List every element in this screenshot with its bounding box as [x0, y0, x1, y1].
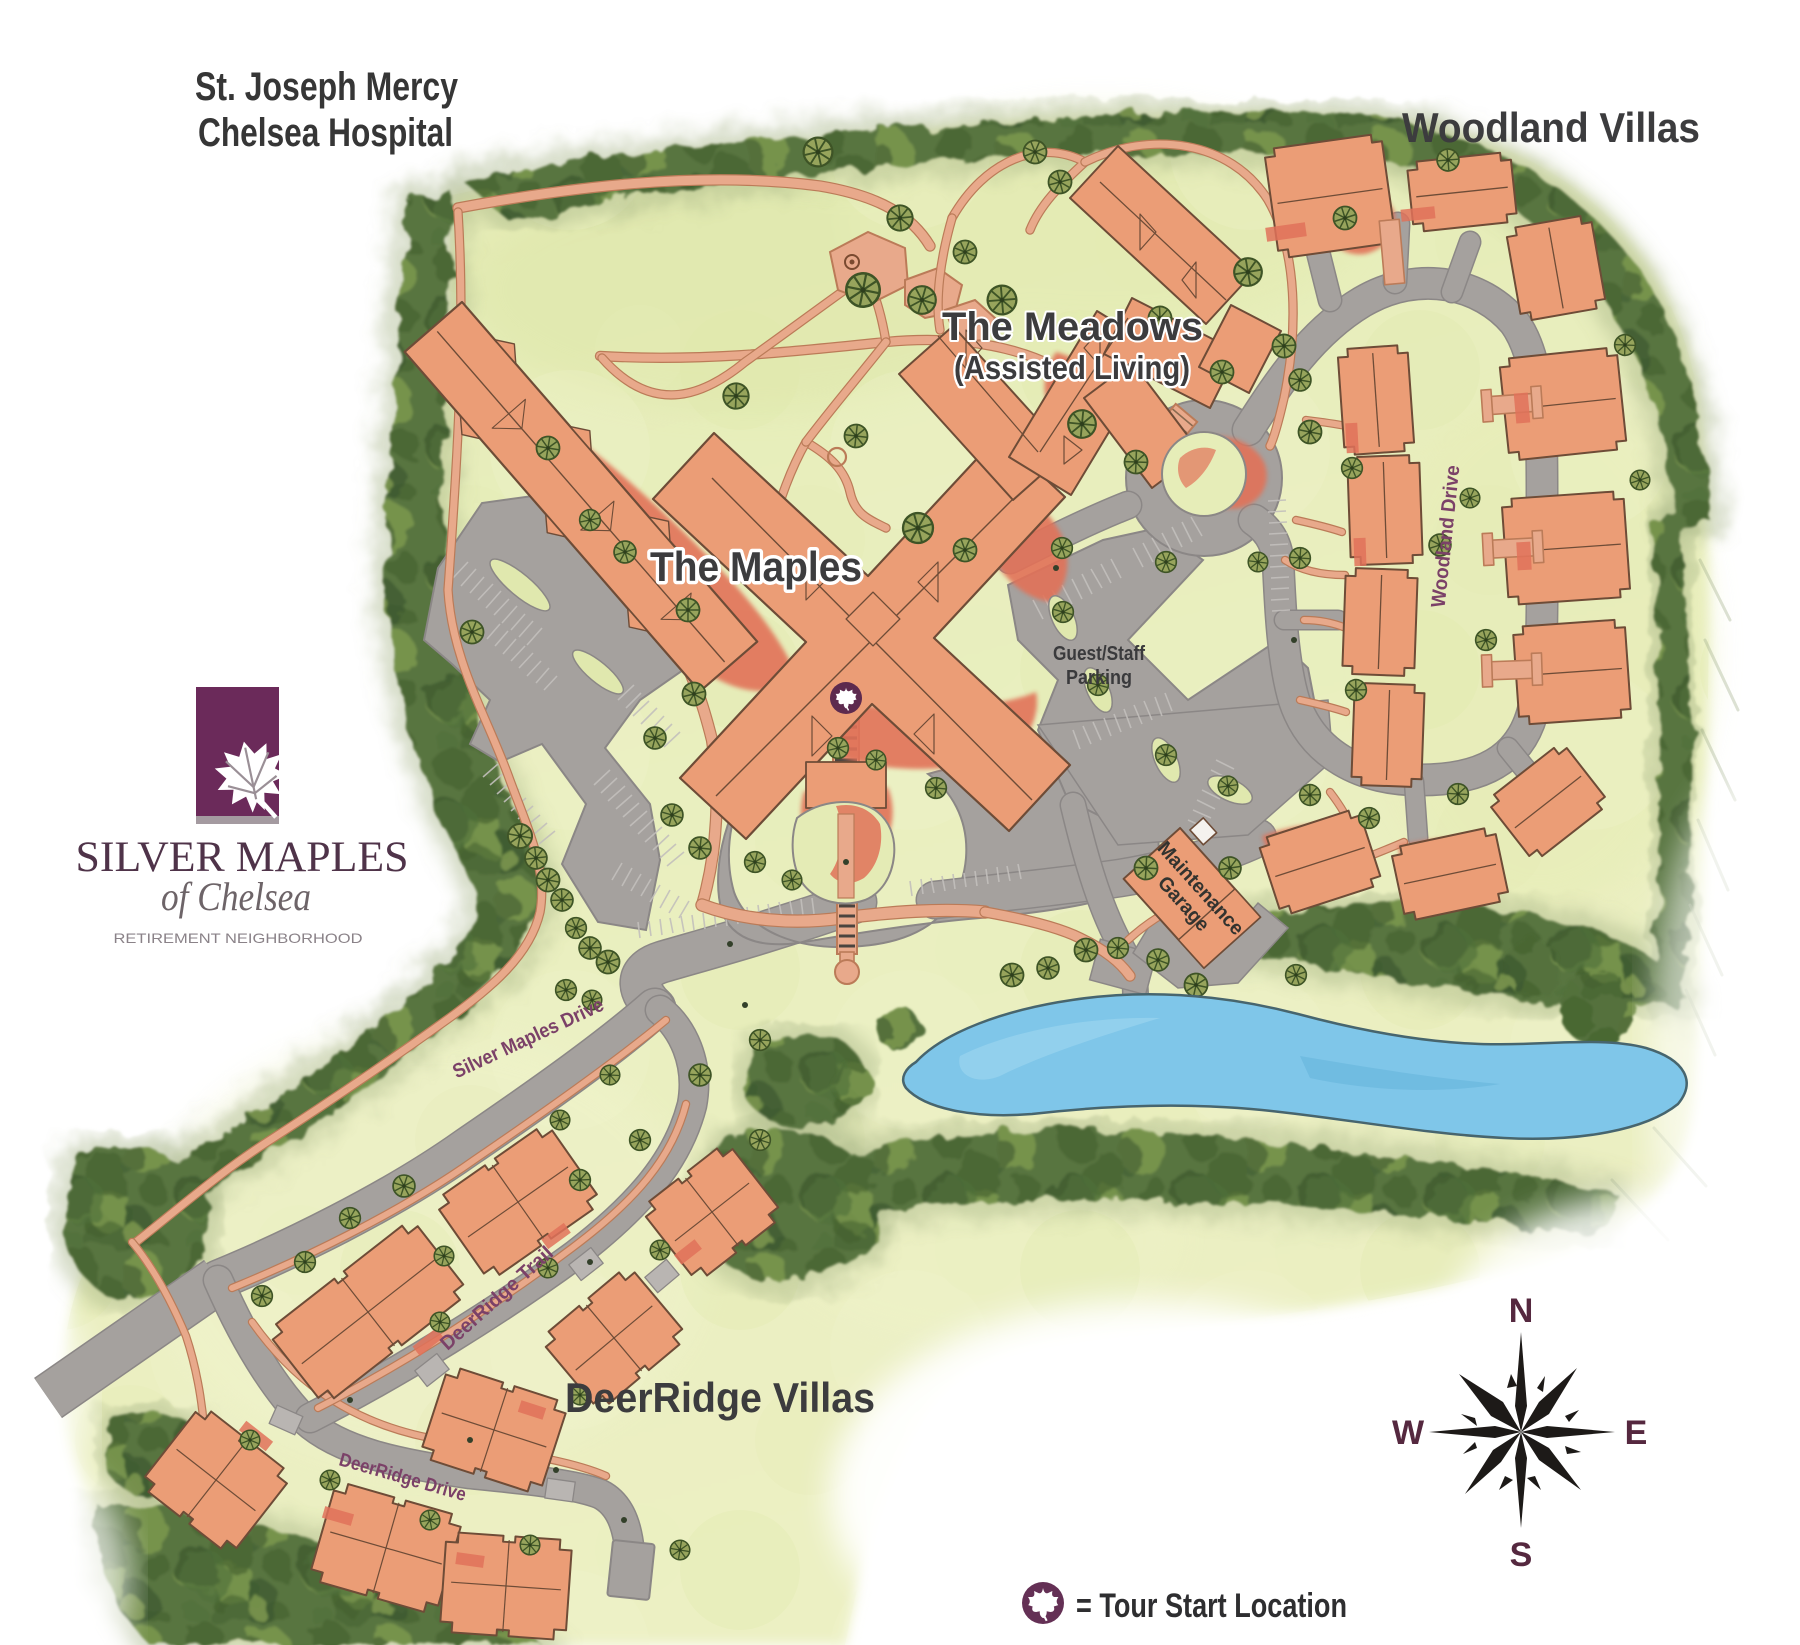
svg-text:Guest/Staff: Guest/Staff [1053, 643, 1145, 665]
svg-text:S: S [1510, 1536, 1533, 1574]
svg-text:DeerRidge Villas: DeerRidge Villas [565, 1374, 875, 1421]
svg-text:(Assisted Living): (Assisted Living) [954, 349, 1190, 386]
svg-text:Parking: Parking [1066, 667, 1132, 689]
svg-text:Woodland Villas: Woodland Villas [1402, 104, 1700, 151]
svg-text:E: E [1625, 1414, 1648, 1452]
svg-text:of Chelsea: of Chelsea [161, 874, 311, 919]
svg-text:The Meadows: The Meadows [942, 305, 1203, 349]
svg-text:W: W [1392, 1414, 1425, 1452]
svg-text:= Tour Start Location: = Tour Start Location [1076, 1587, 1347, 1625]
svg-text:N: N [1509, 1292, 1534, 1330]
svg-text:RETIREMENT NEIGHBORHOOD: RETIREMENT NEIGHBORHOOD [114, 930, 363, 946]
svg-text:The Maples: The Maples [650, 543, 862, 590]
svg-text:St. Joseph Mercy: St. Joseph Mercy [195, 65, 459, 109]
svg-text:Chelsea Hospital: Chelsea Hospital [198, 111, 453, 155]
